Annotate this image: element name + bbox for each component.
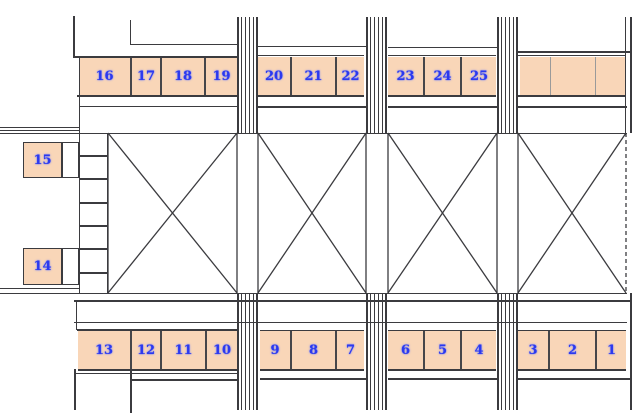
floor-plan: 1617181920212223242513121110987654321151… xyxy=(0,0,640,419)
bays-layer xyxy=(0,0,640,419)
